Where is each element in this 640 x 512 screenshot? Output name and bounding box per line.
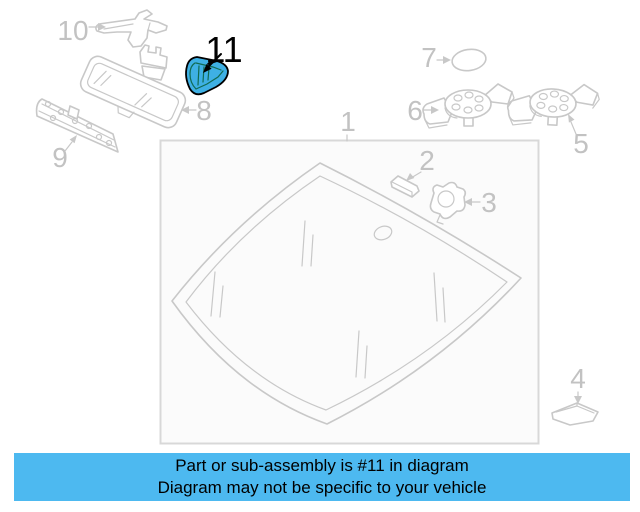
part-label-7: 7 [421, 42, 437, 73]
callout-9: 9 [52, 135, 77, 173]
callout-4: 4 [570, 363, 586, 404]
arrow-9-icon [70, 135, 77, 143]
callout-7: 7 [421, 42, 451, 73]
part-10-wire-harness-cover [96, 10, 167, 47]
part-label-6: 6 [407, 95, 423, 126]
diagram-svg: 1 2 3 4 5 6 [0, 0, 640, 512]
part-4-spacer-block [552, 403, 598, 425]
callout-11-highlighted: 11 [203, 29, 243, 73]
part-label-8: 8 [196, 95, 212, 126]
callout-5: 5 [568, 114, 589, 159]
part-6-rain-sensor [423, 84, 514, 128]
banner-line-2: Diagram may not be specific to your vehi… [158, 477, 487, 499]
part-7-sensor-gasket [451, 47, 488, 73]
callout-1: 1 [340, 106, 356, 141]
part-9-molding-strip [37, 99, 118, 152]
arrow-4-icon [574, 396, 582, 404]
part-label-2: 2 [419, 145, 435, 176]
part-label-3: 3 [481, 187, 497, 218]
part-5-rain-sensor [507, 81, 600, 130]
arrow-7-icon [443, 56, 451, 64]
parts-diagram-canvas: 1 2 3 4 5 6 [0, 0, 640, 512]
part-label-9: 9 [52, 142, 68, 173]
part-8-rearview-mirror [75, 45, 188, 136]
part-label-1: 1 [340, 106, 356, 137]
banner-line-1: Part or sub-assembly is #11 in diagram [175, 455, 469, 477]
part-label-10: 10 [57, 15, 88, 46]
part-note-banner: Part or sub-assembly is #11 in diagram D… [14, 453, 630, 501]
arrow-5-icon [568, 114, 575, 123]
callout-10: 10 [57, 15, 106, 46]
part-label-4: 4 [570, 363, 586, 394]
